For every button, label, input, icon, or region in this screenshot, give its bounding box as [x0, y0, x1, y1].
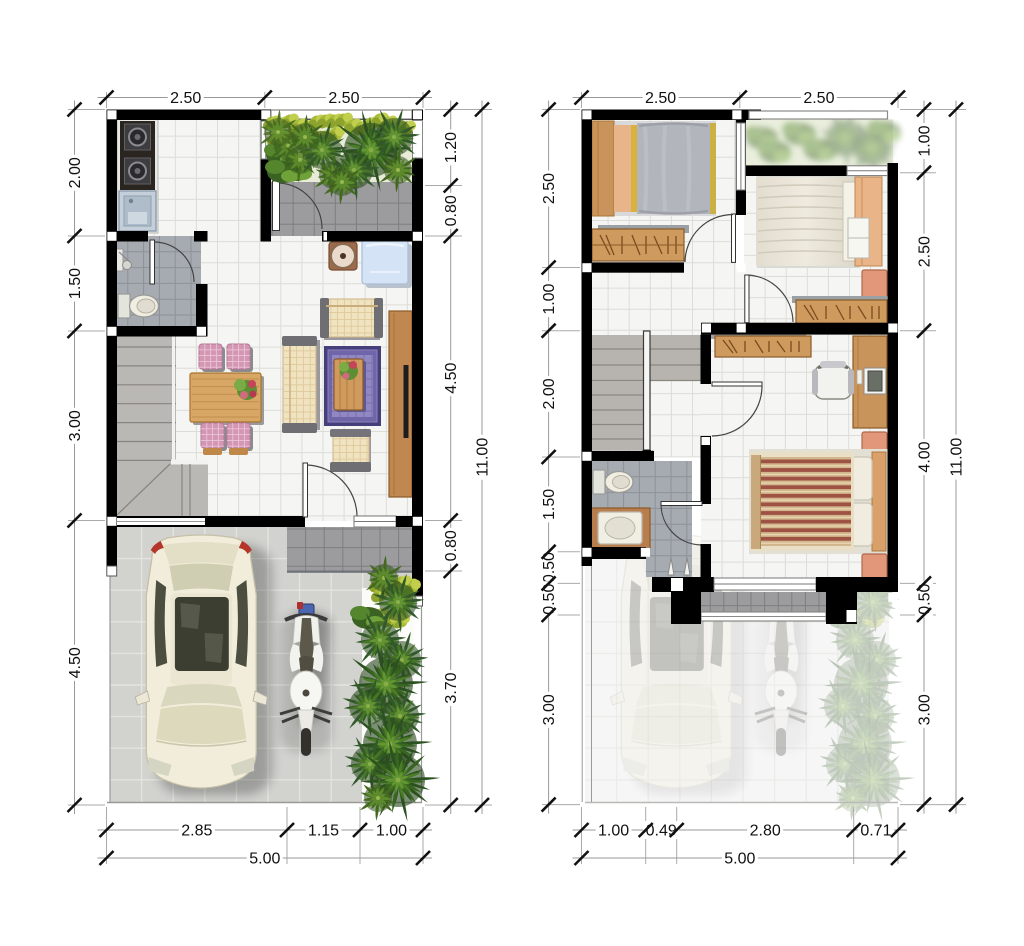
svg-text:2.50: 2.50 — [803, 90, 834, 107]
svg-text:4.50: 4.50 — [443, 363, 460, 394]
svg-text:3.00: 3.00 — [541, 694, 558, 725]
svg-text:2.85: 2.85 — [181, 823, 212, 840]
svg-text:4.50: 4.50 — [67, 647, 84, 678]
svg-text:0.71: 0.71 — [860, 823, 891, 840]
svg-text:1.50: 1.50 — [67, 268, 84, 299]
svg-text:1.50: 1.50 — [541, 489, 558, 520]
svg-text:2.50: 2.50 — [170, 90, 201, 107]
svg-text:11.00: 11.00 — [475, 438, 492, 477]
svg-text:1.00: 1.00 — [917, 125, 934, 156]
svg-text:3.00: 3.00 — [67, 410, 84, 441]
svg-text:5.00: 5.00 — [249, 851, 280, 868]
svg-text:0.80: 0.80 — [443, 195, 460, 226]
svg-text:5.00: 5.00 — [724, 851, 755, 868]
svg-text:1.20: 1.20 — [443, 132, 460, 163]
svg-text:2.00: 2.00 — [67, 157, 84, 188]
svg-text:3.70: 3.70 — [443, 672, 460, 703]
svg-text:2.80: 2.80 — [750, 823, 781, 840]
svg-text:2.50: 2.50 — [917, 236, 934, 267]
svg-text:2.50: 2.50 — [328, 90, 359, 107]
svg-text:11.00: 11.00 — [949, 438, 966, 477]
svg-text:3.00: 3.00 — [917, 694, 934, 725]
svg-text:1.00: 1.00 — [541, 283, 558, 314]
svg-text:1.00: 1.00 — [598, 823, 629, 840]
svg-text:4.00: 4.00 — [917, 441, 934, 472]
svg-text:2.00: 2.00 — [541, 378, 558, 409]
svg-text:1.15: 1.15 — [308, 823, 339, 840]
svg-text:2.50: 2.50 — [541, 173, 558, 204]
svg-text:1.00: 1.00 — [376, 823, 407, 840]
svg-text:0.80: 0.80 — [443, 530, 460, 561]
svg-text:2.50: 2.50 — [645, 90, 676, 107]
